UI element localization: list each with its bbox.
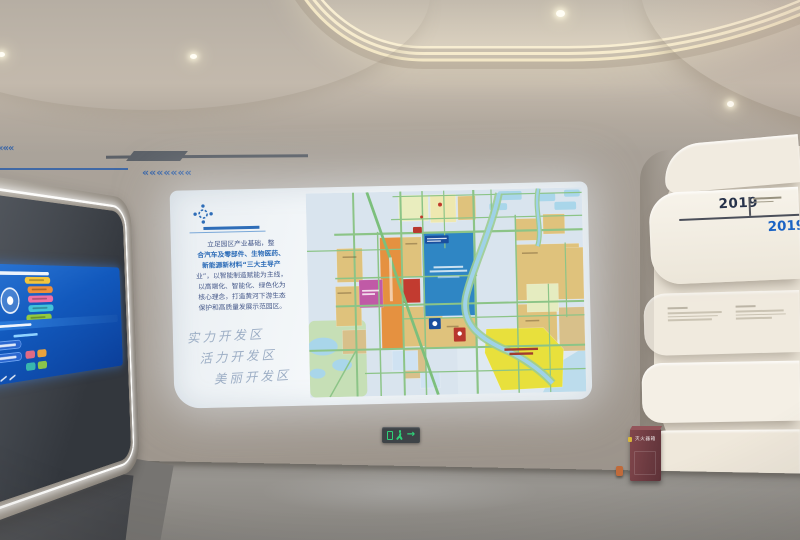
kiosk-pill-orange bbox=[27, 286, 53, 293]
faint-text bbox=[736, 317, 772, 320]
floor-object bbox=[616, 466, 623, 476]
kiosk-chip bbox=[38, 361, 47, 370]
cabinet-label: 灭火器箱 bbox=[630, 435, 661, 442]
cabinet-top-face bbox=[630, 426, 662, 430]
faint-text bbox=[668, 318, 712, 321]
kiosk-chip bbox=[25, 350, 35, 359]
faint-text bbox=[668, 315, 718, 318]
emergency-exit-sign: → bbox=[382, 427, 420, 443]
fire-extinguisher-cabinet: 灭火器箱 bbox=[630, 429, 661, 481]
faint-text bbox=[736, 309, 784, 312]
kiosk-button bbox=[0, 352, 22, 364]
slogan-line: 美丽开发区 bbox=[213, 363, 318, 390]
kiosk-pill-pink bbox=[28, 295, 54, 302]
kiosk-title-text bbox=[0, 270, 49, 275]
kiosk-calligraphy-stroke bbox=[0, 375, 7, 382]
timeline-panel: 2019 2019 bbox=[648, 187, 800, 285]
feature-slab bbox=[641, 361, 800, 424]
timeline-feature-wall: 2019 2019 bbox=[638, 140, 800, 492]
kiosk-chip bbox=[37, 349, 46, 358]
kiosk-hub-center bbox=[7, 296, 14, 305]
intro-paragraph: 立足园区产业基础，整 合汽车及零部件、生物医药、 新能源新材料“三大主导产 业”… bbox=[179, 238, 305, 315]
blue-accent-line bbox=[0, 168, 128, 170]
kiosk-button bbox=[0, 340, 22, 352]
timeline-annotation bbox=[754, 200, 774, 202]
floor-reflection bbox=[205, 466, 595, 530]
exit-running-man-icon bbox=[396, 430, 404, 440]
master-plan-map-area bbox=[306, 187, 587, 397]
timeline-annotation bbox=[753, 197, 781, 200]
kiosk-chip bbox=[26, 362, 36, 371]
compass-icon bbox=[192, 203, 214, 225]
intro-line: 保护和高质量发展示范园区。 bbox=[180, 301, 304, 314]
slogan-calligraphy: 实力开发区 活力开发区 美丽开发区 bbox=[187, 322, 318, 388]
master-plan-map bbox=[306, 187, 587, 397]
faint-text bbox=[736, 313, 786, 316]
downlight-icon bbox=[190, 54, 197, 59]
exit-arrow-icon: → bbox=[407, 430, 415, 440]
cabinet-seal bbox=[628, 437, 632, 442]
kiosk-calligraphy-stroke bbox=[9, 374, 16, 381]
faint-heading bbox=[668, 307, 688, 310]
dark-wall-stripe-wedge bbox=[126, 151, 188, 161]
kiosk-col-header bbox=[14, 333, 38, 337]
title-underline-2 bbox=[190, 230, 266, 233]
kiosk-pill-cyan2 bbox=[28, 304, 53, 312]
faint-text bbox=[668, 311, 722, 314]
chevron-decor-left-icon: ««« bbox=[0, 144, 13, 154]
kiosk-pill-yellow bbox=[25, 277, 51, 284]
exhibition-hall-photo: ««« ««««««« 立足园区产业基础，整 合汽车及零部件、生物医药、 新能源… bbox=[0, 0, 800, 540]
ceiling-tier-curve-left bbox=[0, 0, 430, 110]
title-underline bbox=[203, 226, 259, 230]
cabinet-door-seam bbox=[634, 451, 656, 475]
projected-planning-board: 立足园区产业基础，整 合汽车及零部件、生物医药、 新能源新材料“三大主导产 业”… bbox=[170, 181, 593, 408]
exit-door-icon bbox=[387, 431, 393, 440]
feature-text-panel bbox=[643, 290, 800, 356]
timeline-year-blue: 2019 bbox=[767, 217, 800, 235]
faint-heading bbox=[736, 305, 756, 308]
